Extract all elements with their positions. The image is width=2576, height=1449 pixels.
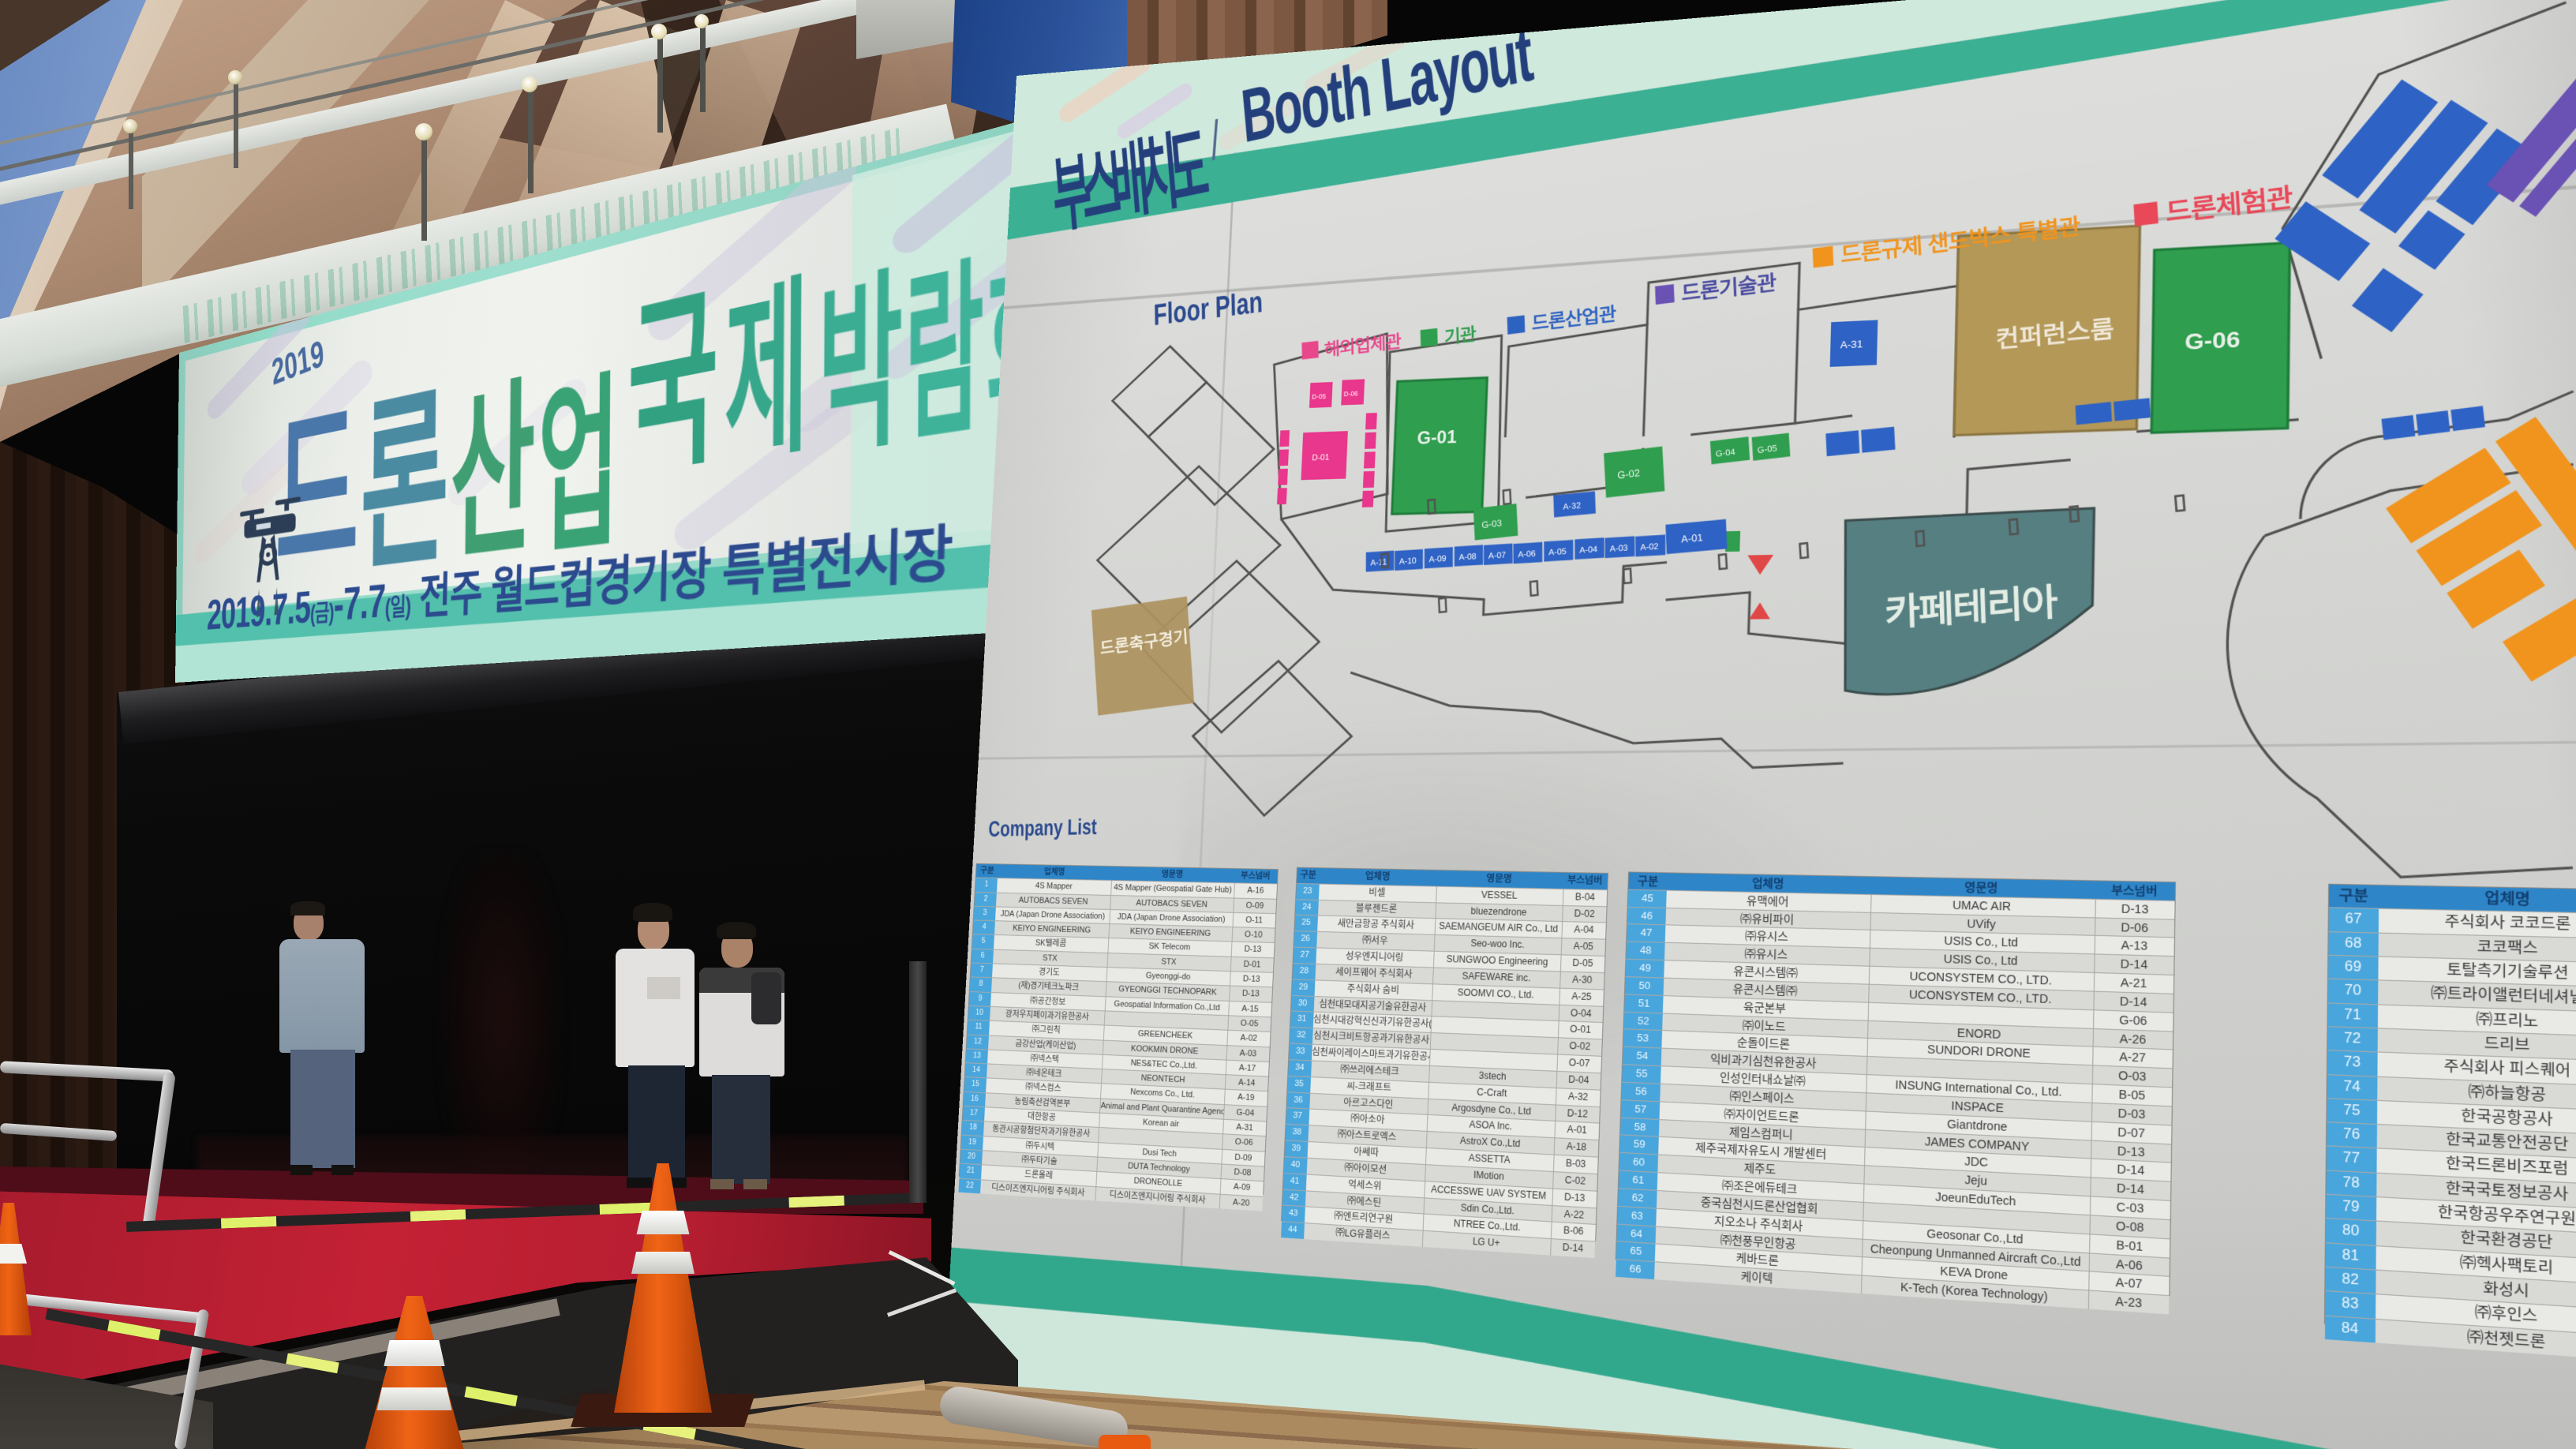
svg-text:A-03: A-03 [1610, 543, 1628, 554]
svg-text:G-03: G-03 [1481, 519, 1502, 531]
svg-text:A-31: A-31 [1840, 339, 1863, 351]
svg-text:D-01: D-01 [1312, 452, 1329, 462]
svg-text:A-09: A-09 [1429, 553, 1447, 563]
svg-text:D-05: D-05 [1312, 392, 1326, 401]
svg-text:A-08: A-08 [1458, 552, 1476, 562]
svg-text:A-11: A-11 [1370, 557, 1387, 567]
svg-text:A-07: A-07 [1488, 550, 1506, 560]
svg-text:G-06: G-06 [2185, 327, 2241, 354]
svg-text:A-05: A-05 [1548, 546, 1567, 556]
svg-text:G-01: G-01 [1417, 427, 1458, 449]
svg-text:A-04: A-04 [1579, 545, 1597, 556]
svg-text:A-10: A-10 [1399, 556, 1417, 566]
svg-text:A-02: A-02 [1640, 541, 1658, 552]
svg-text:A-01: A-01 [1681, 533, 1703, 545]
svg-text:A-06: A-06 [1518, 549, 1536, 559]
svg-text:A-32: A-32 [1563, 500, 1581, 511]
svg-text:D-06: D-06 [1343, 389, 1357, 398]
